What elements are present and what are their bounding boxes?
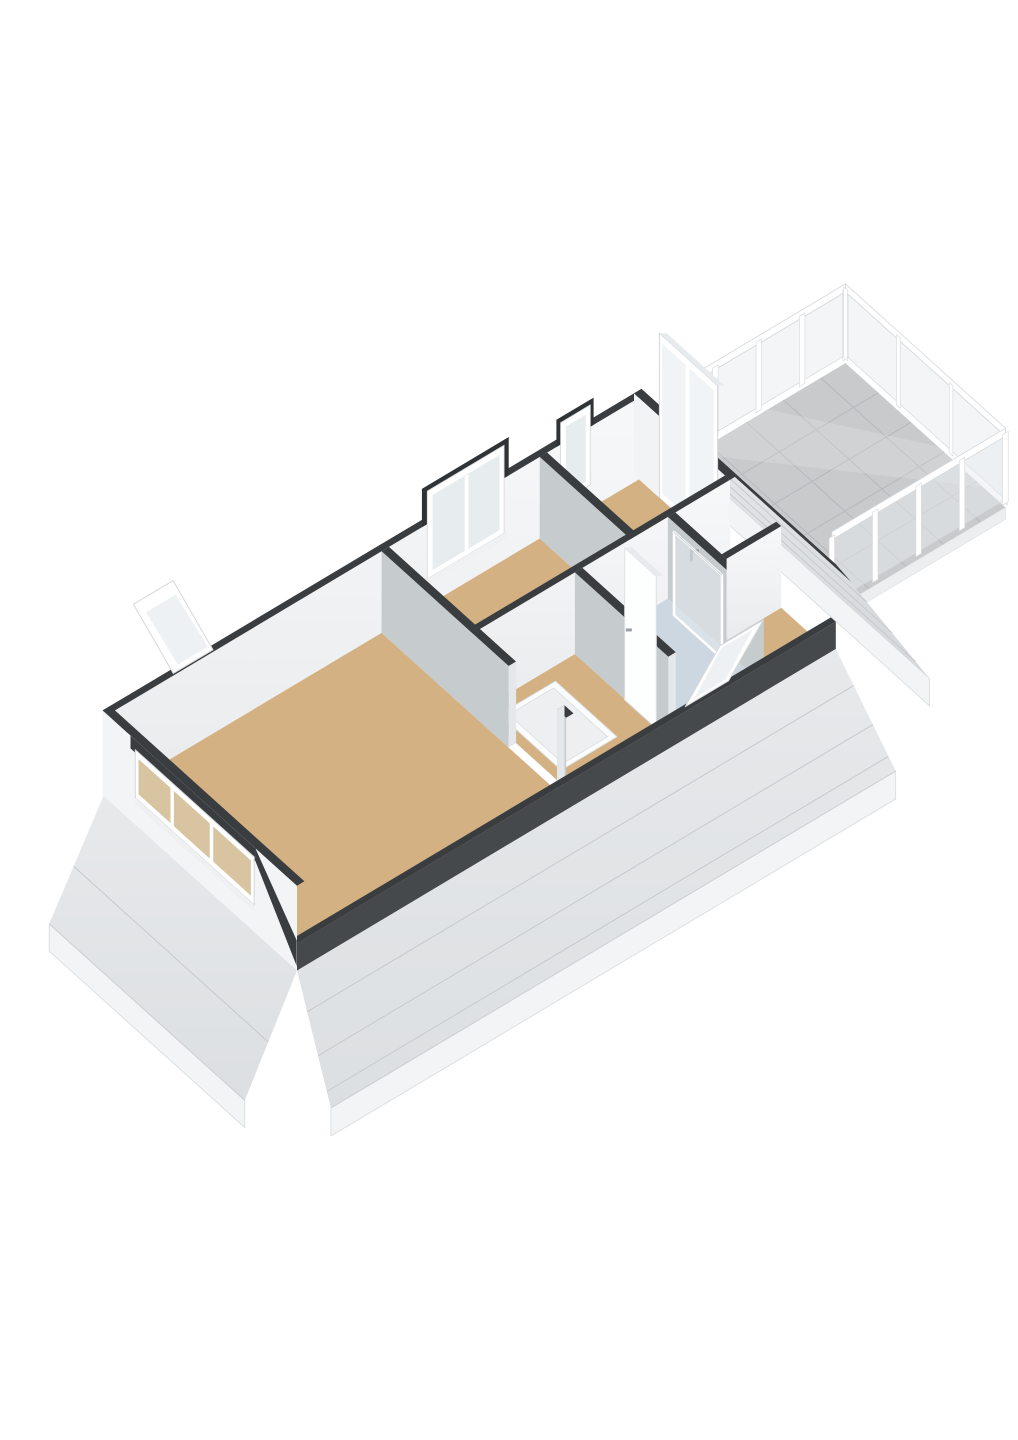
balcony-door-stile	[686, 366, 689, 519]
railing-right-post	[949, 382, 953, 456]
bathroom-door	[625, 548, 657, 729]
floorplan-3d-canvas	[0, 0, 1018, 1440]
dormer-bedroom-mullion	[465, 474, 469, 551]
floorplan-3d-render	[0, 0, 1018, 1440]
railing-right-post	[844, 287, 848, 361]
left-window-mullion	[210, 820, 213, 865]
railing-front-post	[959, 457, 965, 531]
railing-back-post	[756, 339, 762, 413]
railing-front-post	[1003, 431, 1009, 505]
left-window-mullion	[171, 785, 174, 830]
railing-front-post	[873, 509, 879, 583]
railing-front-post	[916, 483, 922, 557]
railing-right-post	[897, 335, 901, 409]
railing-back-post	[799, 313, 805, 387]
door-handle-icon	[626, 628, 632, 631]
balcony-door-glass	[662, 344, 686, 515]
wall-living-partition-end	[509, 662, 516, 748]
